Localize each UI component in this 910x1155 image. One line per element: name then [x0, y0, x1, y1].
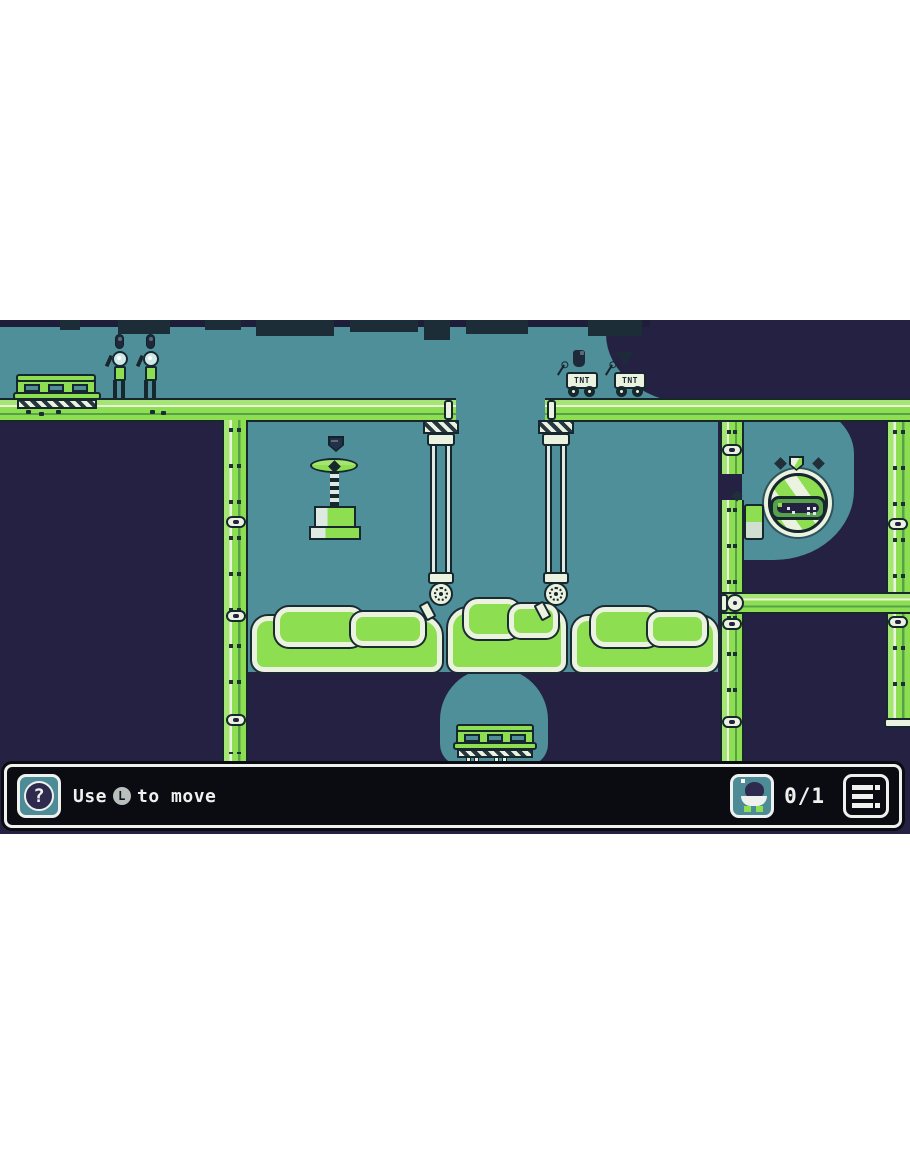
robot — [142, 351, 160, 401]
platform-window — [487, 734, 503, 742]
ceiling-bump — [424, 320, 450, 340]
platform-window — [510, 734, 526, 742]
game-canvas[interactable]: TNT TNT — [0, 320, 910, 834]
page: TNT TNT — [0, 0, 910, 1155]
chain-link — [888, 518, 908, 530]
menu-button[interactable] — [843, 774, 889, 818]
chain-link — [226, 610, 246, 622]
tnt-cart: TNT — [558, 370, 602, 398]
platform-window — [24, 384, 40, 392]
collectible-count: 0/1 — [784, 784, 825, 808]
cart-wheel — [616, 386, 627, 397]
ceiling-bump — [60, 320, 80, 330]
girder-endcap — [547, 400, 556, 420]
creature-foot — [744, 806, 751, 812]
hud-bar: ? Use L to move 0/1 — [4, 764, 902, 828]
drill-cap — [423, 420, 459, 434]
hint-text: Use L to move — [73, 786, 216, 807]
chain-link — [722, 444, 742, 456]
creature-feet — [494, 757, 499, 763]
drill-rails — [430, 446, 452, 572]
creature-counter-icon — [730, 774, 774, 818]
l-key-label: L — [118, 789, 126, 803]
chain-link — [888, 616, 908, 628]
girder-endcap — [444, 400, 453, 420]
chain-link — [722, 618, 742, 630]
cart-wheel — [632, 386, 643, 397]
pod-window — [770, 496, 826, 520]
ceiling-bump — [118, 320, 170, 334]
robot-leg — [152, 380, 156, 400]
cart-wheel — [568, 386, 579, 397]
hint-prefix: Use — [73, 786, 107, 807]
robot-torso — [145, 366, 157, 381]
drill-collar — [427, 433, 455, 446]
debris-mark — [150, 410, 155, 414]
ceiling-bump — [256, 320, 334, 336]
girder-joint — [726, 594, 744, 612]
debris-mark — [39, 412, 44, 416]
flask-marker-icon — [573, 350, 585, 367]
help-button[interactable]: ? — [17, 774, 61, 818]
drill-gear — [544, 582, 568, 606]
hint-suffix: to move — [137, 786, 216, 807]
debris-mark — [56, 410, 61, 414]
cart-wheel — [584, 386, 595, 397]
pill-marker-icon — [115, 334, 124, 349]
menu-dot-icon — [875, 803, 880, 808]
girder-right-horizontal — [722, 592, 910, 614]
ceiling-bump — [466, 320, 528, 334]
ceiling-bump — [205, 320, 241, 330]
crane-propeller — [310, 458, 358, 473]
creature-feet — [502, 757, 507, 763]
column-endcap — [884, 718, 910, 728]
robot-leg — [121, 380, 125, 400]
cave-wall-corner — [606, 320, 910, 404]
crane-chain — [330, 472, 339, 508]
drill-rails — [545, 446, 567, 572]
robot-helmet — [112, 351, 128, 367]
tnt-label: TNT — [622, 376, 638, 385]
robot-helmet — [143, 351, 159, 367]
pill-marker-icon — [146, 334, 155, 349]
ceiling-bump — [588, 320, 642, 336]
debris-mark — [161, 411, 166, 415]
tnt-label: TNT — [574, 376, 590, 385]
platform-hazard-base — [17, 399, 97, 409]
l-key-icon: L — [113, 787, 131, 805]
goo-blob — [572, 616, 718, 672]
question-icon: ? — [24, 781, 54, 811]
girder-top-right — [545, 398, 910, 422]
platform-window — [48, 384, 64, 392]
robot — [111, 351, 129, 401]
platform-window — [464, 734, 480, 742]
creature-bowl — [741, 796, 767, 806]
robot-leg — [113, 380, 117, 400]
crane-crate-top — [314, 506, 356, 528]
robot-torso — [114, 366, 126, 381]
drill-collar — [542, 433, 570, 446]
menu-list-icon — [852, 794, 873, 799]
robot-leg — [144, 380, 148, 400]
menu-list-icon — [852, 803, 873, 808]
chain-link — [722, 716, 742, 728]
tnt-cart: TNT — [606, 370, 650, 398]
drill-cap — [538, 420, 574, 434]
creature-foot — [756, 806, 763, 812]
creature-feet — [466, 757, 471, 763]
menu-dot-icon — [875, 785, 880, 790]
pillar-left — [222, 420, 248, 762]
drill-gear — [429, 582, 453, 606]
column-far-right — [886, 422, 910, 722]
chain-link — [226, 714, 246, 726]
ceiling-bump — [350, 320, 418, 332]
platform-window — [72, 384, 88, 392]
menu-list-icon — [852, 785, 873, 790]
chain-link — [226, 516, 246, 528]
pod-pipe — [744, 504, 764, 540]
debris-mark — [26, 410, 31, 414]
goo-blob — [252, 616, 442, 672]
creature-feet — [474, 757, 479, 763]
crane-crate-bottom — [309, 526, 361, 540]
question-glyph: ? — [33, 785, 44, 807]
